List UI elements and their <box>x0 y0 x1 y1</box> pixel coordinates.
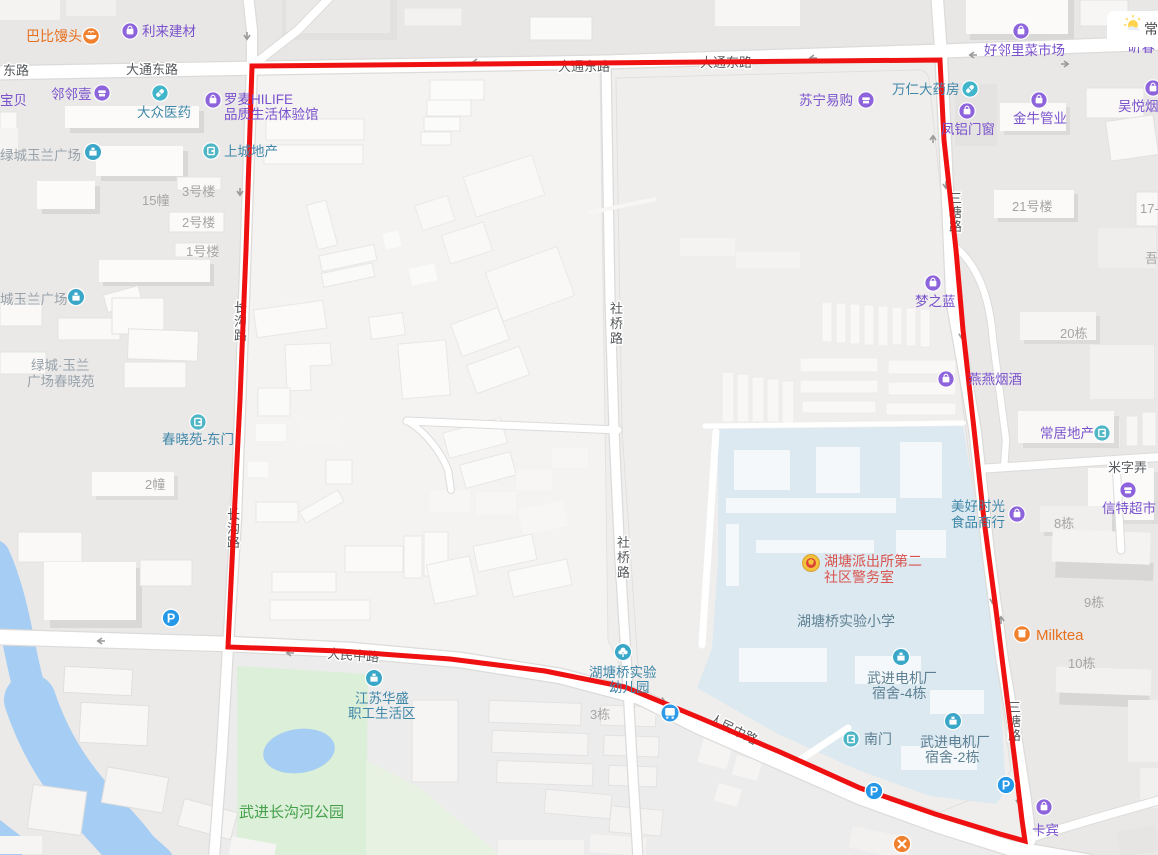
svg-text:17-4: 17-4 <box>1140 201 1158 216</box>
svg-text:南门: 南门 <box>864 731 892 747</box>
svg-text:幼儿园: 幼儿园 <box>609 680 650 695</box>
svg-text:3栋: 3栋 <box>590 707 610 722</box>
svg-text:春晓苑-东门: 春晓苑-东门 <box>162 432 234 447</box>
svg-text:金牛管业: 金牛管业 <box>1013 111 1067 126</box>
svg-text:8栋: 8栋 <box>1054 516 1074 531</box>
svg-text:上城地产: 上城地产 <box>224 144 278 159</box>
svg-text:社桥路: 社桥路 <box>617 535 630 580</box>
svg-text:职工生活区: 职工生活区 <box>348 706 416 721</box>
svg-text:1号楼: 1号楼 <box>186 244 219 259</box>
svg-text:宝贝: 宝贝 <box>0 93 27 108</box>
svg-text:湖塘桥实验小学: 湖塘桥实验小学 <box>797 613 895 629</box>
svg-text:常居地产: 常居地产 <box>1040 426 1094 441</box>
svg-text:武进电机厂: 武进电机厂 <box>920 734 990 750</box>
svg-text:罗麦HILIFE: 罗麦HILIFE <box>224 92 293 107</box>
svg-text:品质生活体验馆: 品质生活体验馆 <box>224 107 319 122</box>
svg-text:信特超市: 信特超市 <box>1102 500 1156 516</box>
svg-text:社桥路: 社桥路 <box>610 301 623 346</box>
svg-text:3号楼: 3号楼 <box>182 184 215 199</box>
svg-text:绿城玉兰广场: 绿城玉兰广场 <box>0 148 81 163</box>
svg-text:梦之蓝: 梦之蓝 <box>915 294 956 309</box>
svg-text:2幢: 2幢 <box>145 477 165 492</box>
svg-text:15幢: 15幢 <box>142 193 169 208</box>
svg-text:武进长沟河公园: 武进长沟河公园 <box>239 804 344 821</box>
svg-text:湖塘派出所第二: 湖塘派出所第二 <box>824 553 922 569</box>
svg-text:大通东路: 大通东路 <box>126 62 178 77</box>
svg-text:好邻里菜市场: 好邻里菜市场 <box>984 42 1065 58</box>
svg-text:广场春晓苑: 广场春晓苑 <box>27 374 95 389</box>
svg-text:武进电机厂: 武进电机厂 <box>867 670 937 686</box>
svg-text:巴比馒头: 巴比馒头 <box>26 28 82 44</box>
svg-text:21号楼: 21号楼 <box>1012 199 1052 214</box>
svg-text:凤铝门窗: 凤铝门窗 <box>941 121 995 137</box>
svg-text:绿城·玉兰: 绿城·玉兰 <box>31 358 90 373</box>
svg-text:燕燕烟酒: 燕燕烟酒 <box>968 372 1022 387</box>
svg-text:米字弄: 米字弄 <box>1108 460 1147 475</box>
svg-text:卡宾: 卡宾 <box>1032 823 1059 838</box>
svg-text:湖塘桥实验: 湖塘桥实验 <box>589 665 657 680</box>
svg-text:江苏华盛: 江苏华盛 <box>355 691 409 706</box>
svg-text:吾: 吾 <box>1145 251 1158 266</box>
svg-text:Milktea: Milktea <box>1036 627 1084 644</box>
svg-text:20栋: 20栋 <box>1060 326 1087 341</box>
svg-text:城玉兰广场: 城玉兰广场 <box>0 292 68 307</box>
svg-text:邻邻壹: 邻邻壹 <box>51 87 92 102</box>
svg-text:万仁大药房: 万仁大药房 <box>892 82 960 97</box>
svg-text:美好时光: 美好时光 <box>951 499 1005 514</box>
svg-text:常州: 常州 <box>1144 21 1158 37</box>
svg-text:10栋: 10栋 <box>1068 656 1095 671</box>
svg-text:大众医药: 大众医药 <box>137 105 191 120</box>
svg-text:宿舍-4栋: 宿舍-4栋 <box>872 685 926 701</box>
svg-text:苏宁易购: 苏宁易购 <box>799 92 853 108</box>
svg-text:东路: 东路 <box>3 63 29 78</box>
svg-text:吴悦烟: 吴悦烟 <box>1118 99 1158 114</box>
svg-text:社区警务室: 社区警务室 <box>824 569 894 585</box>
svg-text:2号楼: 2号楼 <box>182 215 215 230</box>
svg-text:食品商行: 食品商行 <box>951 514 1005 530</box>
svg-text:9栋: 9栋 <box>1084 595 1104 610</box>
svg-text:利来建材: 利来建材 <box>142 24 196 39</box>
svg-text:宿舍-2栋: 宿舍-2栋 <box>925 749 979 765</box>
